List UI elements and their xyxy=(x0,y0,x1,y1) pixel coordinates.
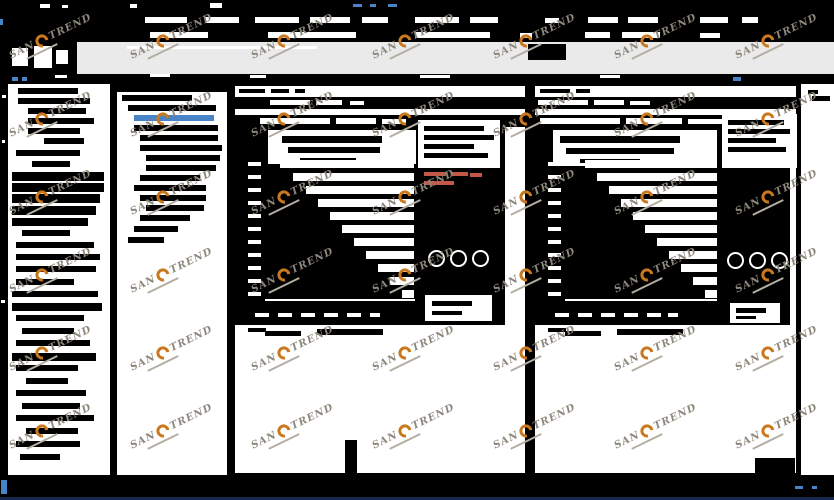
stamp-ring-icon xyxy=(428,250,445,267)
chart-header-text xyxy=(316,100,342,105)
tree-item[interactable] xyxy=(146,155,220,161)
chart-tab-fragment xyxy=(576,89,590,93)
menu-item[interactable] xyxy=(628,17,658,23)
axis-tick-label xyxy=(647,313,661,317)
list-item[interactable] xyxy=(12,291,98,297)
y-axis-label xyxy=(248,175,261,179)
menu-item[interactable] xyxy=(588,17,618,23)
list-item[interactable] xyxy=(20,454,60,460)
tab-fragment xyxy=(600,75,620,78)
menu-item[interactable] xyxy=(415,17,459,23)
axis-tick-label xyxy=(578,313,592,317)
chart-header-text xyxy=(594,100,624,105)
bar-gap xyxy=(681,264,717,272)
menu-item[interactable] xyxy=(545,18,559,23)
list-item[interactable] xyxy=(16,365,78,371)
scrollbar-track[interactable] xyxy=(801,84,834,475)
chart-title-line xyxy=(566,148,674,154)
bar-gap xyxy=(669,251,717,259)
titlebar-text-fragment xyxy=(370,4,376,7)
chart-header-text xyxy=(350,101,364,105)
list-item[interactable] xyxy=(16,254,100,260)
tab-fragment xyxy=(733,77,741,81)
stamp-ring-icon xyxy=(472,250,489,267)
menu-item[interactable] xyxy=(470,17,498,23)
y-axis-label xyxy=(248,266,261,270)
list-item[interactable] xyxy=(16,340,90,346)
axis-tick-label xyxy=(278,313,292,317)
status-bar xyxy=(0,477,834,497)
chart-header-text xyxy=(538,100,588,105)
toolbar-button[interactable] xyxy=(268,32,356,38)
list-item[interactable] xyxy=(28,128,80,134)
x-axis-line xyxy=(265,299,415,301)
window-title-text xyxy=(382,119,406,124)
axis-tick-label xyxy=(601,313,615,317)
chart-title-line xyxy=(288,147,380,153)
chart-footnote xyxy=(617,329,683,335)
y-axis-label xyxy=(248,240,261,244)
axis-tick-label xyxy=(624,313,638,317)
bar-gap xyxy=(330,212,414,220)
menu-item[interactable] xyxy=(742,17,758,23)
y-axis-label xyxy=(548,214,561,218)
y-axis-label xyxy=(548,162,561,166)
list-item[interactable] xyxy=(12,303,102,311)
tab-fragment xyxy=(420,75,450,78)
toolbar-icon[interactable] xyxy=(528,44,566,60)
tree-item[interactable] xyxy=(134,125,218,131)
tab-fragment xyxy=(55,75,67,78)
list-item[interactable] xyxy=(16,279,74,285)
legend-line xyxy=(728,120,784,125)
stamp-ring-icon xyxy=(727,252,744,269)
bar-gap xyxy=(280,160,414,168)
scrollbar-mark xyxy=(812,96,830,101)
tree-item[interactable] xyxy=(134,185,206,191)
menubar-indicator xyxy=(0,19,3,25)
legend-marker-red xyxy=(452,172,468,176)
list-item[interactable] xyxy=(12,218,88,226)
toolbar-icon[interactable] xyxy=(34,46,52,68)
axis-tick-label xyxy=(668,313,678,317)
chart-tab-fragment xyxy=(540,89,570,93)
toolbar-icon[interactable] xyxy=(127,46,317,49)
titlebar-text-fragment xyxy=(388,4,397,7)
toolbar-button[interactable] xyxy=(415,32,490,38)
bar-gap xyxy=(693,277,717,285)
bar-gap xyxy=(366,251,414,259)
stamp-ring-icon xyxy=(771,252,788,269)
legend-line xyxy=(424,153,488,158)
status-indicator xyxy=(1,480,7,494)
y-axis-label xyxy=(548,266,561,270)
list-item[interactable] xyxy=(12,183,104,192)
stamp-ring-icon xyxy=(450,250,467,267)
y-axis-label xyxy=(248,279,261,283)
list-item[interactable] xyxy=(16,315,84,321)
scrollbar-mark xyxy=(808,90,818,94)
y-axis-label xyxy=(548,175,561,179)
legend-line xyxy=(728,147,786,152)
bar-gap xyxy=(342,225,414,233)
window-title-text xyxy=(540,118,620,124)
y-axis-label xyxy=(248,227,261,231)
chart-footnote xyxy=(565,331,601,336)
legend-line xyxy=(424,135,494,140)
chart-title-line xyxy=(560,136,680,143)
x-axis-line xyxy=(565,299,717,301)
titlebar-text-fragment xyxy=(130,4,137,8)
tree-item[interactable] xyxy=(128,237,164,243)
bar-gap xyxy=(354,238,414,246)
title-bar[interactable] xyxy=(0,0,834,13)
axis-tick-label xyxy=(301,313,315,317)
tree-item[interactable] xyxy=(140,195,206,201)
titlebar-text-fragment xyxy=(210,3,222,8)
status-indicator xyxy=(812,486,817,489)
tree-item[interactable] xyxy=(140,135,218,141)
tab-fragment xyxy=(12,77,18,81)
tab-fragment xyxy=(150,74,170,77)
y-axis-label xyxy=(248,253,261,257)
tab-band xyxy=(0,74,834,84)
list-item[interactable] xyxy=(12,206,96,215)
list-item[interactable] xyxy=(16,441,80,447)
tree-item[interactable] xyxy=(140,215,190,221)
chart-tab-fragment xyxy=(271,89,289,93)
list-item[interactable] xyxy=(28,118,94,124)
axis-tick-label xyxy=(324,313,338,317)
list-item[interactable] xyxy=(28,108,86,114)
y-axis-label xyxy=(248,201,261,205)
chart-header-text xyxy=(630,101,650,105)
stamp-ring-icon xyxy=(749,252,766,269)
y-axis-label xyxy=(548,201,561,205)
panel-artifact xyxy=(755,458,795,474)
chart-stat-box xyxy=(425,295,492,321)
legend-line xyxy=(728,129,790,134)
application-window: SANTRENDSANTRENDSANTRENDSANTRENDSANTREND… xyxy=(0,0,834,500)
bar-gap xyxy=(657,238,717,246)
chart-tab-fragment xyxy=(295,89,305,93)
titlebar-text-fragment xyxy=(40,4,50,8)
list-item[interactable] xyxy=(22,230,70,236)
chart-header-text xyxy=(270,100,310,105)
y-axis-label xyxy=(548,292,561,296)
y-axis-label xyxy=(548,227,561,231)
toolbar-button[interactable] xyxy=(585,32,610,38)
chart-footnote xyxy=(265,331,301,336)
toolbar-button[interactable] xyxy=(700,33,720,38)
legend-line xyxy=(728,138,776,143)
toolbar-button[interactable] xyxy=(520,33,532,38)
bar-gap xyxy=(318,199,414,207)
bar-gap xyxy=(597,173,717,181)
list-item[interactable] xyxy=(26,378,68,384)
list-item[interactable] xyxy=(22,328,74,334)
bar-gap xyxy=(390,277,414,285)
y-axis-label xyxy=(548,279,561,283)
tree-item[interactable] xyxy=(134,226,178,232)
titlebar-text-fragment xyxy=(62,5,68,8)
list-item[interactable] xyxy=(16,150,80,156)
axis-tick-label xyxy=(555,313,569,317)
list-item[interactable] xyxy=(18,98,90,104)
tab-fragment xyxy=(250,75,266,78)
axis-tick-label xyxy=(370,313,380,317)
legend-marker-red xyxy=(470,173,482,177)
bar-gap xyxy=(645,225,717,233)
bar-gap xyxy=(609,186,717,194)
list-item[interactable] xyxy=(22,403,80,409)
legend-marker-red xyxy=(424,172,446,176)
menu-item[interactable] xyxy=(700,17,728,23)
panel-edge-speck xyxy=(2,95,6,98)
list-item[interactable] xyxy=(12,172,104,181)
stat-box-line xyxy=(736,316,756,319)
bar-gap xyxy=(378,264,414,272)
legend-line xyxy=(424,144,474,149)
list-item[interactable] xyxy=(32,161,70,167)
chart-stat-box xyxy=(730,303,780,323)
list-item[interactable] xyxy=(18,88,78,94)
tree-item[interactable] xyxy=(146,205,204,211)
legend-marker-red xyxy=(424,181,454,185)
tree-item[interactable] xyxy=(146,165,216,171)
toolbar-button[interactable] xyxy=(150,32,208,38)
list-item[interactable] xyxy=(16,390,86,396)
bar-gap xyxy=(705,290,717,298)
menu-item[interactable] xyxy=(362,17,388,23)
tree-panel-header xyxy=(117,84,227,92)
chart-footnote xyxy=(548,328,566,332)
window-title-text xyxy=(626,118,682,124)
bar-gap xyxy=(585,160,717,168)
bar-gap xyxy=(633,212,717,220)
y-axis-label xyxy=(548,240,561,244)
chart-footnote xyxy=(248,328,266,332)
y-axis-label xyxy=(248,162,261,166)
titlebar-text-fragment xyxy=(353,4,362,7)
axis-tick-label xyxy=(255,313,269,317)
bar-gap xyxy=(306,186,414,194)
toolbar-icon[interactable] xyxy=(56,50,68,64)
toolbar-button[interactable] xyxy=(622,32,660,38)
stat-box-line xyxy=(432,311,462,315)
chart-title-line xyxy=(282,136,382,143)
toolbar-icon[interactable] xyxy=(12,48,28,66)
menu-item[interactable] xyxy=(145,17,187,23)
list-item[interactable] xyxy=(44,138,84,144)
panel-artifact xyxy=(345,440,357,474)
axis-tick-label xyxy=(347,313,361,317)
tree-panel-bg xyxy=(117,84,227,475)
bar-gap xyxy=(621,199,717,207)
chart-footnote xyxy=(317,329,383,335)
legend-line xyxy=(424,126,484,131)
list-item[interactable] xyxy=(16,242,94,248)
list-item[interactable] xyxy=(26,428,78,434)
panel-edge-speck xyxy=(1,300,5,303)
window-title-text xyxy=(260,118,330,124)
list-item[interactable] xyxy=(12,194,100,203)
stat-box-line xyxy=(736,308,766,313)
status-indicator xyxy=(795,486,803,489)
window-title-text xyxy=(688,119,724,124)
menu-item[interactable] xyxy=(255,17,299,23)
menu-item[interactable] xyxy=(310,17,350,23)
panel-edge-speck xyxy=(2,140,5,143)
tree-item[interactable] xyxy=(140,145,222,151)
window-title-text xyxy=(336,118,376,124)
tab-fragment xyxy=(22,77,27,81)
tree-item[interactable] xyxy=(140,175,200,181)
stat-box-line xyxy=(432,301,472,306)
tree-item-selected[interactable] xyxy=(134,115,214,121)
list-item[interactable] xyxy=(16,266,96,272)
y-axis-label xyxy=(248,214,261,218)
bar-gap xyxy=(293,173,414,181)
chart-tab-fragment xyxy=(239,89,265,93)
tree-item[interactable] xyxy=(128,105,216,111)
menu-item[interactable] xyxy=(205,17,239,23)
bar-gap xyxy=(402,290,414,298)
list-item[interactable] xyxy=(12,353,96,361)
y-axis-label xyxy=(548,188,561,192)
tree-item[interactable] xyxy=(122,95,192,101)
list-item[interactable] xyxy=(16,415,94,421)
y-axis-label xyxy=(248,292,261,296)
y-axis-label xyxy=(248,188,261,192)
y-axis-label xyxy=(548,253,561,257)
